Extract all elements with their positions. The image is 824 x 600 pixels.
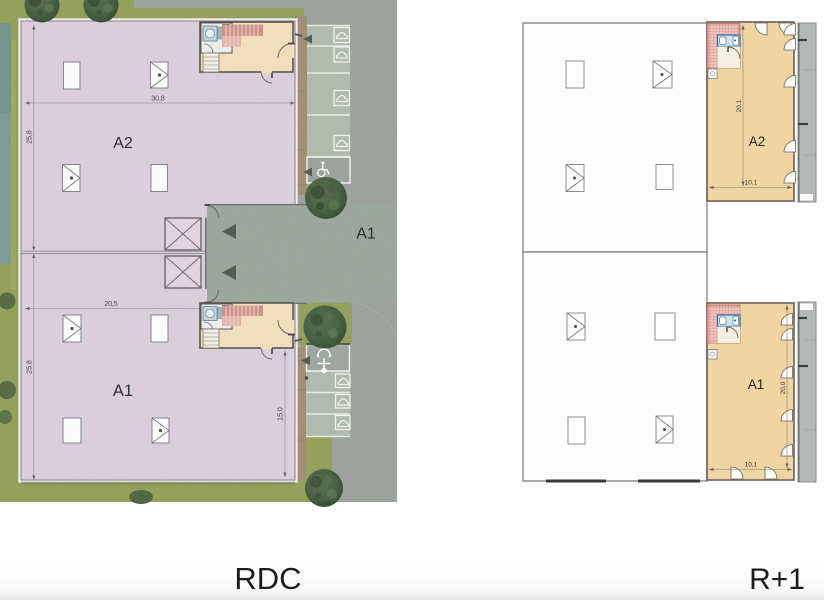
svg-text:A2: A2 <box>749 134 766 149</box>
svg-text:20,1: 20,1 <box>736 99 743 112</box>
svg-text:10,1: 10,1 <box>745 462 758 469</box>
svg-text:10,1: 10,1 <box>745 180 758 187</box>
svg-text:A1: A1 <box>748 377 765 392</box>
svg-text:RDC: RDC <box>234 561 301 596</box>
svg-text:20,0: 20,0 <box>780 381 787 394</box>
svg-text:R+1: R+1 <box>749 563 805 596</box>
